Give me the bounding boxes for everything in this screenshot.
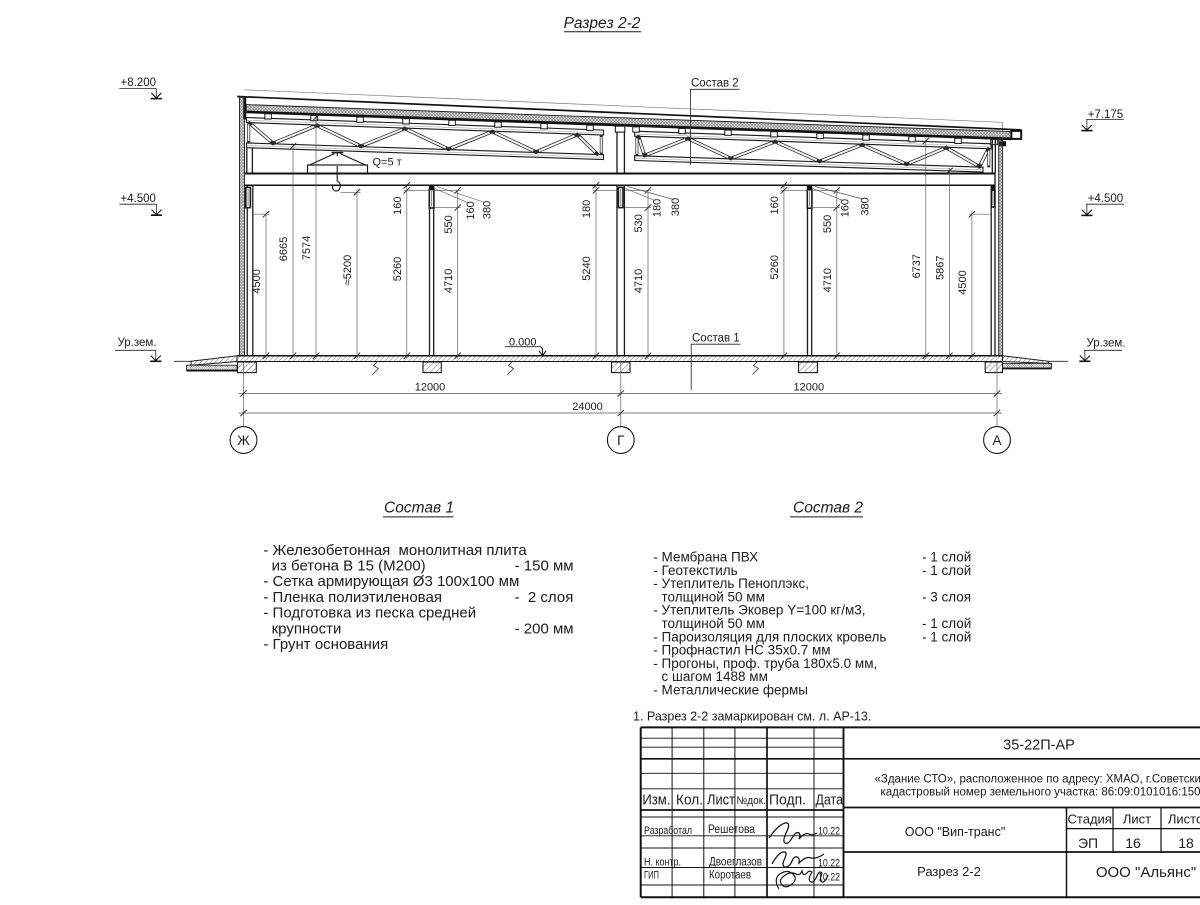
svg-text:4710: 4710	[633, 269, 645, 293]
svg-text:- Сетка армирующая Ø3 100х100: - Сетка армирующая Ø3 100х100 мм	[263, 573, 519, 590]
svg-text:180: 180	[581, 200, 593, 218]
svg-text:160: 160	[392, 197, 404, 215]
svg-text:- 1 слой: - 1 слой	[922, 563, 971, 578]
svg-text:- 2 слоя: - 2 слоя	[515, 589, 574, 606]
svg-text:№док.: №док.	[737, 795, 767, 807]
svg-text:+8.200: +8.200	[121, 77, 157, 89]
svg-text:4500: 4500	[957, 270, 969, 294]
svg-text:6737: 6737	[911, 254, 923, 278]
svg-text:5260: 5260	[392, 257, 404, 281]
svg-text:- 1 слой: - 1 слой	[922, 629, 971, 644]
svg-text:7574: 7574	[301, 236, 313, 260]
svg-text:Ур.зем.: Ур.зем.	[118, 337, 157, 349]
svg-text:крупности: крупности	[272, 620, 342, 637]
svg-text:Состав 2: Состав 2	[793, 500, 863, 517]
svg-text:Лист: Лист	[1123, 812, 1151, 827]
svg-text:Коротаев: Коротаев	[709, 870, 751, 882]
svg-text:Разрез 2-2: Разрез 2-2	[917, 864, 981, 879]
svg-text:12000: 12000	[794, 382, 825, 394]
svg-text:А: А	[992, 433, 1001, 448]
svg-text:≈5200: ≈5200	[342, 255, 354, 286]
svg-text:ГИП: ГИП	[644, 870, 659, 882]
svg-text:Изм.: Изм.	[642, 792, 670, 809]
svg-text:5240: 5240	[581, 256, 593, 280]
svg-text:Ж: Ж	[237, 433, 250, 448]
svg-text:Q=5 т: Q=5 т	[373, 157, 402, 169]
svg-text:1. Разрез 2-2 замаркирован см.: 1. Разрез 2-2 замаркирован см. л. АР-13.	[633, 710, 871, 724]
svg-text:160: 160	[769, 196, 781, 214]
svg-text:5867: 5867	[935, 256, 947, 280]
svg-text:Ур.зем.: Ур.зем.	[1087, 337, 1126, 349]
svg-text:- Подготовка из песка средней: - Подготовка из песка средней	[263, 605, 476, 622]
svg-text:Дата: Дата	[816, 792, 844, 809]
svg-text:Кол.: Кол.	[676, 792, 703, 809]
svg-text:- 200 мм: - 200 мм	[515, 620, 574, 637]
svg-text:Состав 1: Состав 1	[692, 332, 740, 344]
svg-text:Лист: Лист	[707, 792, 735, 809]
svg-text:380: 380	[482, 201, 494, 219]
svg-text:из бетона В 15 (М200): из бетона В 15 (М200)	[272, 558, 426, 575]
svg-text:380: 380	[859, 197, 871, 215]
svg-text:Состав 2: Состав 2	[691, 78, 739, 90]
svg-text:- Пленка полиэтиленовая: - Пленка полиэтиленовая	[263, 589, 442, 606]
svg-text:10.22: 10.22	[818, 826, 840, 838]
svg-text:4500: 4500	[251, 269, 263, 293]
svg-text:Решетова: Решетова	[708, 824, 756, 836]
svg-text:- 3 слоя: - 3 слоя	[922, 589, 971, 604]
svg-text:Двоеглазов: Двоеглазов	[709, 857, 762, 869]
svg-text:4710: 4710	[822, 268, 834, 292]
svg-text:10.22: 10.22	[818, 858, 840, 870]
svg-text:160: 160	[840, 199, 852, 217]
svg-text:ЭП: ЭП	[1078, 835, 1098, 851]
svg-text:160: 160	[465, 201, 477, 219]
svg-text:Состав 1: Состав 1	[384, 500, 454, 517]
svg-text:35-22П-АР: 35-22П-АР	[1003, 738, 1075, 754]
svg-text:Разработал: Разработал	[644, 825, 692, 837]
svg-text:5260: 5260	[769, 255, 781, 279]
svg-text:550: 550	[443, 215, 455, 233]
svg-text:ООО "Альянс": ООО "Альянс"	[1096, 864, 1196, 881]
svg-text:Разрез 2-2: Разрез 2-2	[564, 15, 641, 32]
svg-text:Г: Г	[617, 433, 625, 448]
svg-text:18: 18	[1178, 835, 1194, 851]
svg-text:550: 550	[822, 215, 834, 233]
svg-text:380: 380	[670, 198, 682, 216]
svg-text:Н. контр.: Н. контр.	[644, 857, 681, 869]
svg-text:24000: 24000	[572, 401, 603, 413]
svg-text:- Грунт основания: - Грунт основания	[263, 636, 388, 653]
svg-text:6665: 6665	[278, 237, 290, 261]
svg-text:Стадия: Стадия	[1068, 812, 1112, 827]
svg-text:ООО "Вип-транс": ООО "Вип-транс"	[905, 825, 1006, 839]
svg-text:кадастровый номер земельного у: кадастровый номер земельного участка: 86…	[881, 787, 1200, 799]
svg-text:530: 530	[633, 214, 645, 232]
svg-text:Листов: Листов	[1168, 812, 1200, 827]
svg-text:180: 180	[652, 199, 664, 217]
svg-text:- Металлические фермы: - Металлические фермы	[653, 683, 808, 698]
svg-text:«Здание СТО», расположенное по: «Здание СТО», расположенное по адресу: Х…	[875, 774, 1200, 786]
svg-text:4710: 4710	[443, 269, 455, 293]
svg-text:Подп.: Подп.	[769, 792, 806, 809]
svg-text:+4.500: +4.500	[120, 193, 155, 205]
svg-text:12000: 12000	[415, 382, 446, 394]
svg-text:+4.500: +4.500	[1088, 193, 1124, 205]
svg-text:- 150 мм: - 150 мм	[515, 558, 574, 575]
svg-text:16: 16	[1125, 835, 1141, 851]
